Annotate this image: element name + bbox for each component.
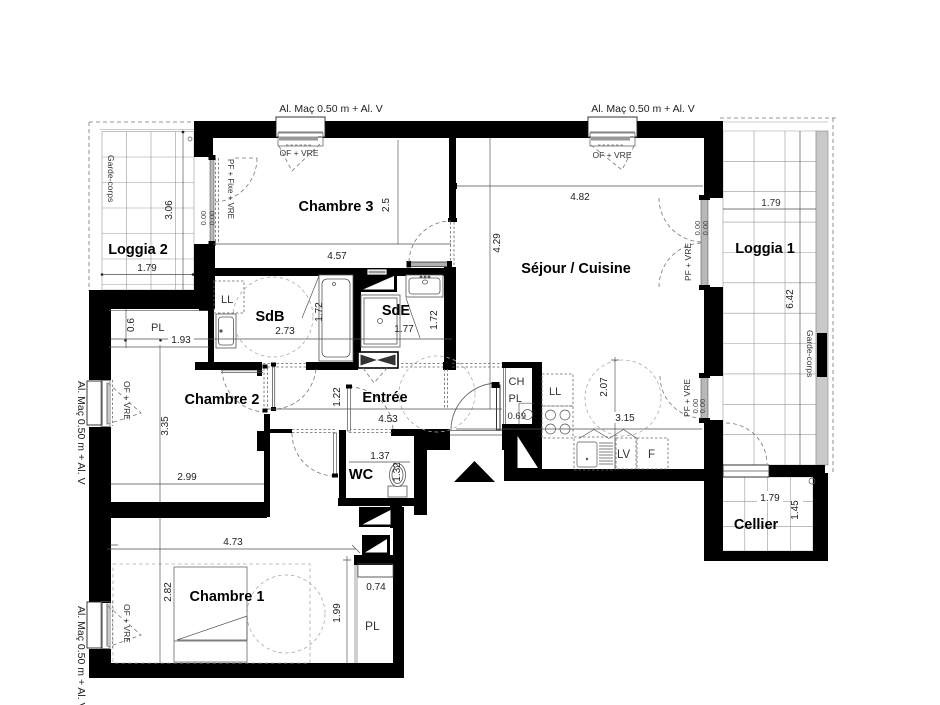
svg-text:PL: PL	[509, 393, 522, 405]
svg-text:4.53: 4.53	[378, 414, 398, 425]
svg-text:1.79: 1.79	[137, 263, 157, 274]
svg-text:LV: LV	[617, 449, 631, 461]
svg-text:Garde-corps: Garde-corps	[805, 330, 815, 377]
svg-text:F: F	[648, 449, 655, 461]
svg-text:1.93: 1.93	[171, 335, 191, 346]
svg-text:0.00: 0.00	[698, 399, 707, 414]
svg-text:Garde-corps: Garde-corps	[106, 155, 116, 202]
svg-text:2.5: 2.5	[381, 198, 392, 212]
svg-text:1.72: 1.72	[429, 310, 440, 330]
svg-text:OF + VRE: OF + VRE	[593, 150, 632, 160]
svg-text:0.00: 0.00	[208, 211, 217, 226]
svg-text:Loggia 2: Loggia 2	[108, 242, 168, 258]
svg-text:1.79: 1.79	[761, 198, 781, 209]
svg-text:1.37: 1.37	[370, 451, 390, 462]
svg-text:3.15: 3.15	[615, 413, 635, 424]
svg-text:LL: LL	[549, 386, 561, 398]
svg-text:Al. Maç 0.50 m + Al. V: Al. Maç 0.50 m + Al. V	[591, 103, 695, 115]
svg-text:PF + Fixe + VRE: PF + Fixe + VRE	[226, 159, 235, 219]
svg-text:1.79: 1.79	[760, 493, 780, 504]
svg-text:OF + VRE: OF + VRE	[122, 604, 132, 643]
svg-text:2.82: 2.82	[163, 582, 174, 602]
svg-text:SdB: SdB	[256, 309, 285, 325]
svg-text:2.99: 2.99	[177, 472, 197, 483]
svg-text:Al. Maç 0.50 m + Al. V: Al. Maç 0.50 m + Al. V	[75, 381, 87, 485]
svg-text:2.73: 2.73	[275, 326, 295, 337]
svg-text:6.42: 6.42	[785, 289, 796, 309]
svg-text:0.74: 0.74	[366, 582, 386, 593]
svg-text:Al. Maç 0.50 m + Al. V: Al. Maç 0.50 m + Al. V	[279, 103, 383, 115]
svg-text:4.29: 4.29	[492, 233, 503, 253]
svg-text:Chambre 3: Chambre 3	[299, 199, 374, 215]
svg-text:1.99: 1.99	[332, 603, 343, 623]
svg-text:1.72: 1.72	[314, 302, 325, 322]
svg-text:4.73: 4.73	[223, 537, 243, 548]
svg-text:SdE: SdE	[382, 303, 411, 319]
svg-text:0.6: 0.6	[126, 318, 137, 332]
svg-text:CH: CH	[509, 376, 525, 388]
svg-text:1.22: 1.22	[332, 387, 343, 407]
svg-text:Séjour / Cuisine: Séjour / Cuisine	[521, 261, 631, 277]
svg-text:1.45: 1.45	[790, 500, 801, 520]
svg-text:Loggia 1: Loggia 1	[735, 241, 795, 257]
svg-text:0.69: 0.69	[508, 411, 527, 422]
svg-text:PL: PL	[151, 322, 164, 334]
svg-text:4.82: 4.82	[570, 192, 590, 203]
svg-text:3.06: 3.06	[164, 200, 175, 220]
svg-text:2.07: 2.07	[599, 377, 610, 397]
svg-text:1.32: 1.32	[392, 462, 403, 482]
svg-text:WC: WC	[349, 467, 374, 483]
svg-text:PF + VRE: PF + VRE	[683, 243, 693, 281]
svg-text:Chambre 1: Chambre 1	[190, 589, 265, 605]
svg-text:Cellier: Cellier	[734, 517, 779, 533]
svg-text:4.57: 4.57	[327, 251, 347, 262]
svg-text:3.35: 3.35	[160, 416, 171, 436]
svg-text:OF + VRE: OF + VRE	[122, 381, 132, 420]
svg-text:Al. Maç 0.50 m + Al. V: Al. Maç 0.50 m + Al. V	[75, 606, 87, 705]
svg-text:1.77: 1.77	[394, 324, 414, 335]
svg-text:0.00: 0.00	[701, 221, 710, 236]
svg-text:PL: PL	[365, 619, 380, 633]
svg-text:OF + VRE: OF + VRE	[280, 148, 319, 158]
svg-text:LL: LL	[221, 294, 233, 306]
svg-text:Chambre 2: Chambre 2	[185, 392, 260, 408]
svg-text:Entrée: Entrée	[362, 390, 407, 406]
